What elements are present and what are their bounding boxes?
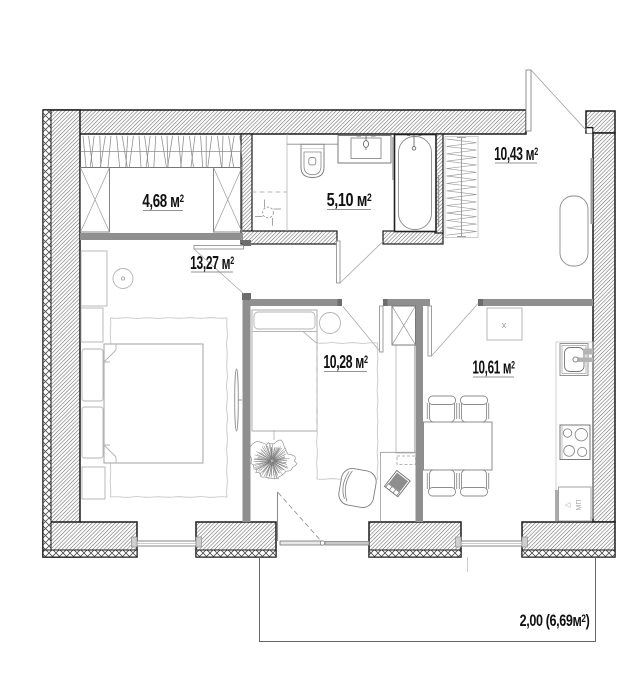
svg-text:10,61 м2: 10,61 м2 [472, 358, 515, 378]
svg-text:10,43 м2: 10,43 м2 [494, 145, 538, 165]
svg-text:2,00 (6,69м2): 2,00 (6,69м2) [520, 611, 590, 630]
svg-text:МП: МП [576, 500, 583, 511]
svg-text:5,10 м2: 5,10 м2 [327, 189, 373, 210]
svg-text:4,68 м2: 4,68 м2 [142, 191, 183, 212]
svg-text:x: x [502, 320, 507, 330]
svg-text:13,27 м2: 13,27 м2 [190, 254, 234, 274]
svg-text:△: △ [565, 502, 572, 508]
svg-text:10,28 м2: 10,28 м2 [323, 353, 368, 373]
